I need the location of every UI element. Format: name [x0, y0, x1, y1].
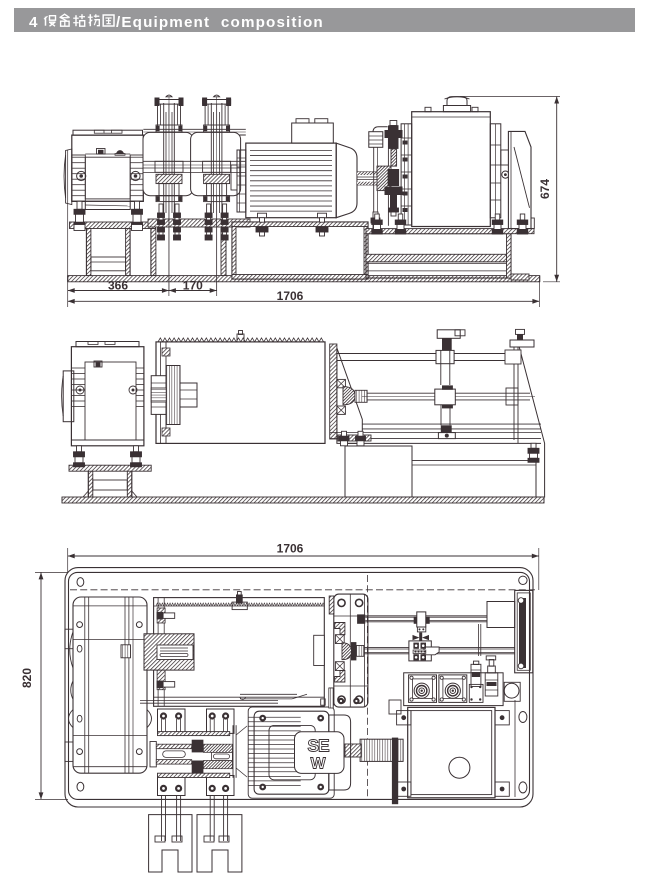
svg-text:674: 674 [538, 179, 552, 199]
svg-text:1706: 1706 [277, 542, 304, 556]
svg-text:4: 4 [29, 14, 38, 31]
svg-text:366: 366 [108, 278, 128, 292]
svg-text:1706: 1706 [277, 289, 304, 303]
svg-text:SE: SE [307, 736, 329, 756]
svg-text:170: 170 [183, 278, 203, 292]
svg-text:/Equipment composition: /Equipment composition [116, 14, 324, 31]
svg-text:W: W [310, 756, 326, 773]
svg-text:820: 820 [20, 668, 34, 688]
